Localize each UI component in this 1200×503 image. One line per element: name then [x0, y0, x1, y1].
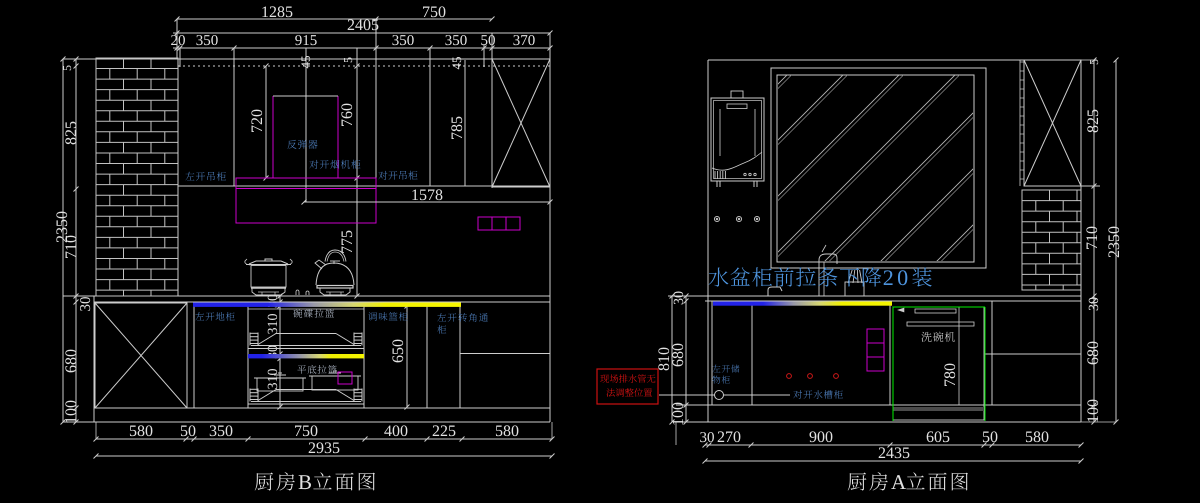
svg-text:605: 605	[926, 429, 950, 446]
svg-text:0: 0	[897, 265, 908, 290]
svg-text:50: 50	[180, 423, 196, 440]
svg-text:1578: 1578	[411, 187, 443, 204]
svg-text:350: 350	[196, 33, 219, 49]
svg-text:650: 650	[390, 339, 407, 363]
svg-text:750: 750	[422, 4, 446, 21]
svg-text:30: 30	[672, 291, 687, 305]
svg-text:580: 580	[495, 423, 519, 440]
svg-text:310: 310	[266, 314, 281, 335]
svg-text:710: 710	[63, 235, 80, 259]
svg-text:30: 30	[1087, 297, 1102, 311]
svg-text:350: 350	[445, 33, 468, 49]
svg-text:775: 775	[339, 230, 356, 254]
svg-text:310: 310	[266, 369, 281, 390]
svg-text:1285: 1285	[261, 4, 293, 21]
svg-text:900: 900	[809, 429, 833, 446]
svg-text:825: 825	[63, 121, 80, 145]
svg-text:350: 350	[392, 33, 415, 49]
svg-text:45: 45	[449, 57, 464, 70]
svg-text:2935: 2935	[308, 440, 340, 457]
svg-text:100: 100	[670, 402, 687, 426]
svg-text:30: 30	[700, 430, 715, 446]
svg-text:30: 30	[78, 297, 94, 312]
svg-text:580: 580	[129, 423, 153, 440]
svg-text:2: 2	[883, 265, 894, 290]
svg-text:350: 350	[209, 423, 233, 440]
svg-text:580: 580	[1025, 429, 1049, 446]
svg-text:370: 370	[513, 33, 536, 49]
svg-text:20: 20	[171, 33, 186, 49]
svg-text:825: 825	[1085, 109, 1102, 133]
svg-text:750: 750	[294, 423, 318, 440]
svg-text:45: 45	[298, 56, 313, 69]
svg-text:100: 100	[63, 400, 80, 424]
svg-text:710: 710	[1084, 226, 1101, 250]
svg-text:915: 915	[295, 33, 318, 49]
svg-text:680: 680	[1085, 341, 1102, 365]
svg-text:680: 680	[670, 343, 687, 367]
svg-text:50: 50	[982, 429, 998, 446]
svg-text:225: 225	[432, 423, 456, 440]
svg-text:50: 50	[481, 33, 496, 49]
svg-text:A: A	[891, 470, 907, 494]
svg-text:2435: 2435	[878, 445, 910, 462]
svg-text:400: 400	[384, 423, 408, 440]
svg-text:2350: 2350	[1106, 226, 1123, 258]
svg-text:B: B	[298, 470, 312, 494]
svg-text:780: 780	[942, 363, 959, 387]
svg-text:680: 680	[63, 349, 80, 373]
svg-text:100: 100	[1085, 399, 1102, 423]
svg-text:2405: 2405	[347, 17, 379, 34]
svg-text:785: 785	[449, 116, 466, 140]
svg-text:5: 5	[341, 57, 355, 63]
svg-text:270: 270	[717, 429, 741, 446]
svg-text:720: 720	[249, 109, 266, 133]
svg-text:5: 5	[60, 65, 74, 71]
svg-text:760: 760	[339, 103, 356, 127]
